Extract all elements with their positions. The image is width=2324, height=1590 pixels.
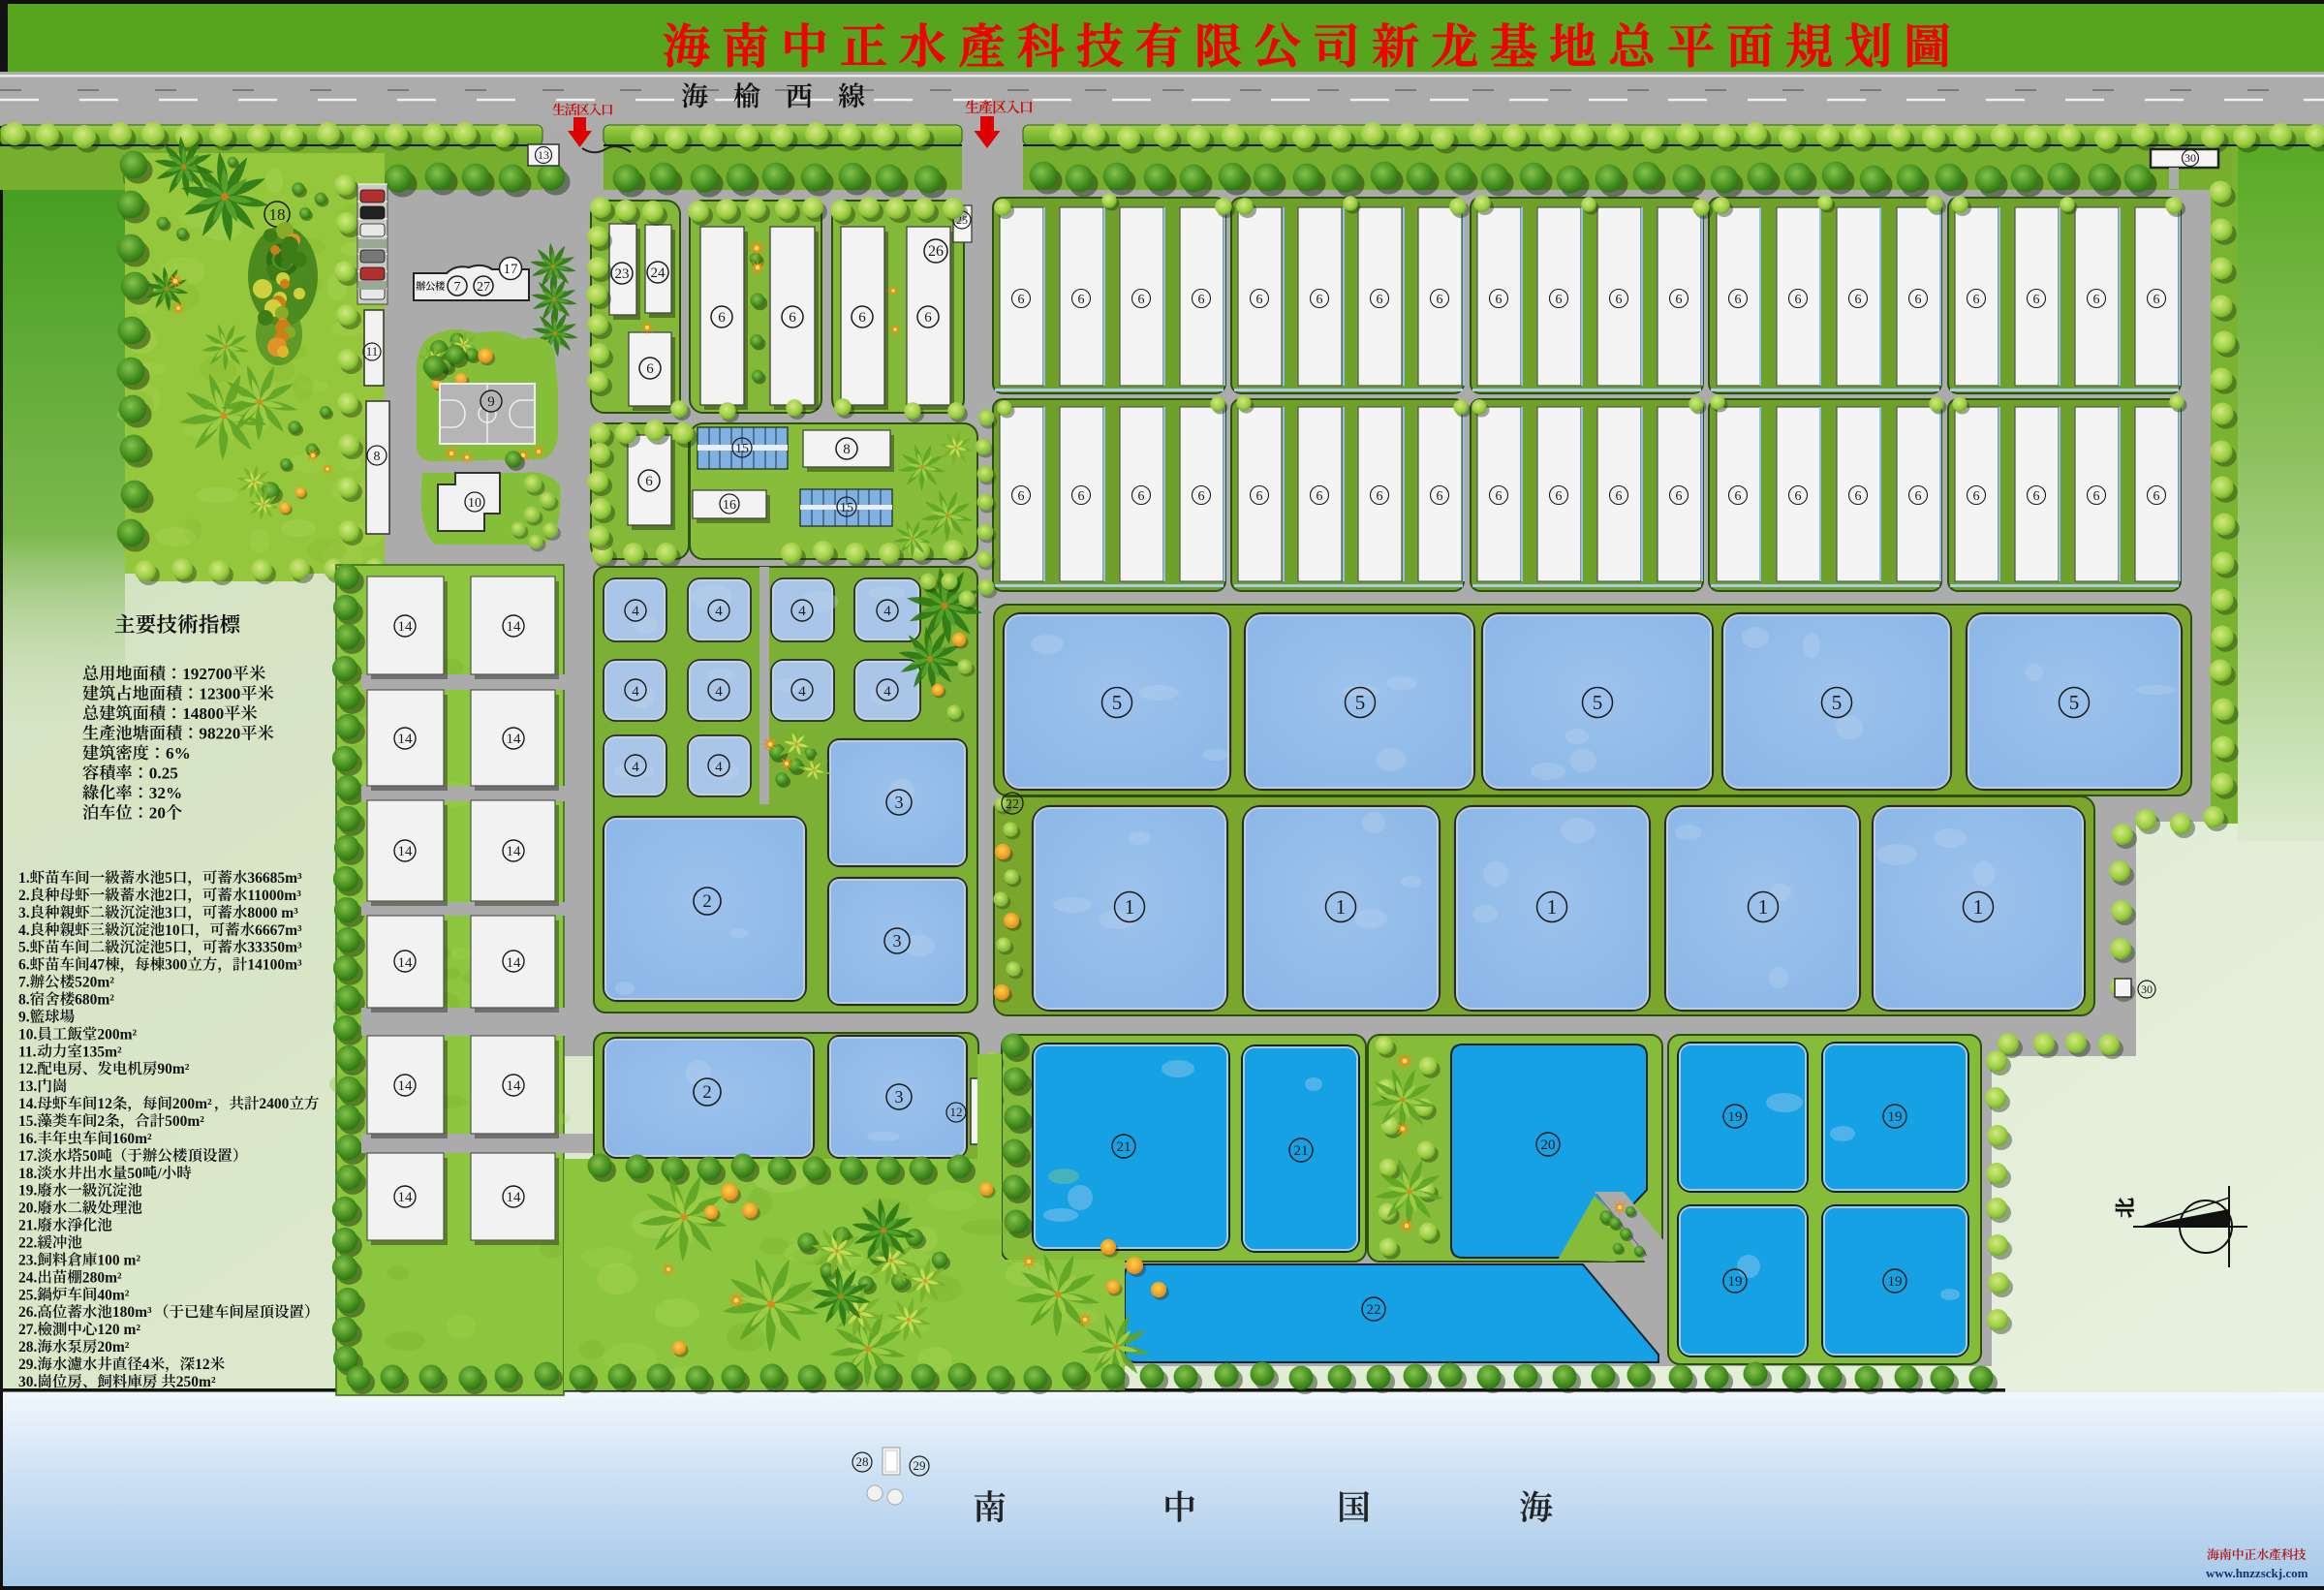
- svg-text:2400: 2400: [259, 1096, 289, 1112]
- svg-text:30: 30: [2185, 151, 2196, 165]
- svg-text:6: 6: [1018, 293, 1025, 307]
- svg-text:6: 6: [1915, 293, 1922, 307]
- svg-text:5: 5: [1593, 691, 1603, 714]
- svg-text:1: 1: [1336, 895, 1347, 919]
- svg-text:6667m³: 6667m³: [255, 922, 302, 939]
- svg-text:29: 29: [914, 1458, 926, 1473]
- svg-text:22: 22: [1006, 797, 1019, 812]
- svg-text:1.: 1.: [18, 870, 30, 887]
- svg-text:50: 50: [127, 1166, 142, 1182]
- svg-text:12300: 12300: [199, 685, 240, 703]
- svg-text:14: 14: [507, 619, 522, 635]
- svg-text:6: 6: [1377, 293, 1383, 307]
- svg-text:18: 18: [269, 205, 286, 224]
- svg-text:14800: 14800: [182, 704, 224, 723]
- svg-text:200m²: 200m²: [97, 1026, 137, 1043]
- svg-text:14: 14: [398, 732, 414, 747]
- svg-text:6: 6: [1973, 489, 1980, 504]
- svg-text:6: 6: [1377, 489, 1383, 504]
- svg-text:20: 20: [149, 804, 166, 823]
- svg-text:6: 6: [718, 310, 726, 326]
- svg-text:18.: 18.: [18, 1166, 38, 1182]
- svg-text:50: 50: [82, 1148, 98, 1165]
- svg-text:500m²: 500m²: [165, 1113, 204, 1130]
- svg-text:11.: 11.: [18, 1044, 37, 1060]
- svg-text:8.: 8.: [18, 992, 30, 1009]
- svg-text:135m²: 135m²: [82, 1044, 122, 1060]
- svg-text:40m²: 40m²: [97, 1287, 129, 1303]
- svg-text:4: 4: [883, 604, 891, 619]
- svg-text:29.: 29.: [18, 1356, 38, 1373]
- svg-text:13: 13: [538, 148, 549, 162]
- svg-text:3: 3: [895, 1087, 904, 1107]
- svg-text:15.: 15.: [18, 1113, 38, 1130]
- svg-text:180m³: 180m³: [112, 1304, 152, 1321]
- svg-text:6: 6: [1256, 293, 1263, 307]
- svg-text:14.: 14.: [18, 1096, 38, 1112]
- svg-text:2: 2: [702, 1082, 712, 1103]
- svg-text:6: 6: [1496, 489, 1503, 504]
- svg-text:19: 19: [1888, 1274, 1903, 1290]
- svg-text:10: 10: [165, 922, 180, 939]
- svg-text:6: 6: [1676, 489, 1683, 504]
- svg-text:6: 6: [1018, 489, 1025, 504]
- svg-text:14: 14: [507, 1078, 522, 1094]
- svg-text:25.: 25.: [18, 1287, 38, 1303]
- svg-text:9.: 9.: [18, 1009, 30, 1025]
- svg-text:6: 6: [1556, 293, 1563, 307]
- svg-text:36685m³: 36685m³: [247, 870, 302, 887]
- svg-text:6: 6: [2093, 293, 2100, 307]
- svg-text:26: 26: [928, 243, 944, 260]
- svg-text:4: 4: [142, 1356, 150, 1373]
- svg-text:14: 14: [507, 844, 522, 859]
- svg-text:200m²: 200m²: [172, 1096, 212, 1112]
- svg-text:23: 23: [615, 266, 630, 282]
- svg-text:14100m³: 14100m³: [247, 957, 302, 974]
- svg-text:192700: 192700: [182, 665, 232, 683]
- svg-text:6: 6: [1855, 293, 1862, 307]
- svg-text:5: 5: [1832, 691, 1843, 714]
- svg-text:6: 6: [1676, 293, 1683, 307]
- svg-text:6: 6: [1078, 293, 1085, 307]
- svg-text:3: 3: [165, 905, 172, 921]
- svg-text:6.: 6.: [18, 957, 30, 974]
- svg-text:22: 22: [1367, 1302, 1381, 1318]
- svg-text:2: 2: [702, 891, 712, 912]
- svg-text:3.: 3.: [18, 905, 30, 921]
- svg-text:4: 4: [632, 604, 639, 619]
- svg-text:4: 4: [715, 760, 723, 775]
- svg-text:26.: 26.: [18, 1304, 38, 1321]
- svg-text:6: 6: [1317, 293, 1323, 307]
- svg-text:2: 2: [165, 888, 172, 904]
- svg-text:6: 6: [1138, 293, 1145, 307]
- svg-text:250m²: 250m²: [176, 1374, 216, 1390]
- svg-text:23.: 23.: [18, 1253, 38, 1269]
- svg-text:6: 6: [924, 310, 932, 326]
- svg-text:28.: 28.: [18, 1339, 38, 1356]
- svg-text:6: 6: [1735, 489, 1742, 504]
- svg-text:6: 6: [645, 474, 653, 489]
- svg-text:6: 6: [1855, 489, 1862, 504]
- svg-text:6: 6: [1795, 293, 1802, 307]
- svg-text:1: 1: [1758, 895, 1769, 919]
- svg-text:22.: 22.: [18, 1235, 38, 1252]
- svg-text:520m²: 520m²: [75, 975, 114, 991]
- svg-text:6: 6: [646, 361, 654, 377]
- svg-text:0.25: 0.25: [149, 764, 178, 783]
- svg-text:6: 6: [1437, 293, 1443, 307]
- svg-text:16.: 16.: [18, 1131, 38, 1147]
- svg-text:6: 6: [1616, 293, 1623, 307]
- svg-text:4: 4: [798, 684, 806, 700]
- svg-text:/: /: [156, 1166, 162, 1182]
- svg-text:5.: 5.: [18, 940, 30, 956]
- svg-text:47: 47: [90, 957, 106, 974]
- svg-text:6: 6: [1496, 293, 1503, 307]
- svg-text:5: 5: [2069, 691, 2080, 714]
- svg-text:120 m²: 120 m²: [97, 1322, 140, 1338]
- svg-text:6: 6: [1973, 293, 1980, 307]
- svg-text:11: 11: [366, 344, 379, 359]
- svg-text:680m²: 680m²: [75, 992, 114, 1009]
- svg-text:280m²: 280m²: [82, 1269, 122, 1286]
- svg-text:19.: 19.: [18, 1183, 38, 1200]
- svg-text:19: 19: [1888, 1109, 1903, 1125]
- svg-text:6: 6: [1198, 489, 1205, 504]
- svg-text:17.: 17.: [18, 1148, 38, 1165]
- svg-text:1: 1: [1125, 895, 1135, 919]
- svg-text:12.: 12.: [18, 1061, 38, 1077]
- svg-text:4: 4: [632, 684, 639, 700]
- svg-text:5: 5: [1355, 691, 1366, 714]
- svg-text:12: 12: [195, 1356, 210, 1373]
- svg-text:6: 6: [1556, 489, 1563, 504]
- svg-text:6: 6: [1078, 489, 1085, 504]
- svg-text:20: 20: [1541, 1138, 1556, 1153]
- svg-text:7: 7: [454, 280, 461, 295]
- svg-text:3: 3: [895, 793, 904, 812]
- svg-text:14: 14: [507, 955, 522, 971]
- svg-text:6: 6: [858, 310, 866, 326]
- svg-text:5: 5: [1112, 691, 1123, 714]
- svg-text:6: 6: [2033, 489, 2040, 504]
- svg-text:4: 4: [632, 760, 639, 775]
- svg-text:30: 30: [2141, 982, 2153, 996]
- svg-text:17: 17: [504, 262, 519, 277]
- svg-text:98220: 98220: [199, 725, 240, 743]
- svg-text:15: 15: [735, 442, 749, 456]
- svg-text:4: 4: [883, 684, 891, 700]
- svg-text:2: 2: [97, 1113, 105, 1130]
- svg-text:6: 6: [1915, 489, 1922, 504]
- svg-text:2.: 2.: [18, 888, 30, 904]
- svg-text:14: 14: [507, 1190, 522, 1205]
- svg-text:24: 24: [651, 265, 666, 281]
- svg-text:6: 6: [2154, 293, 2160, 307]
- svg-text:4.: 4.: [18, 922, 30, 939]
- svg-text:4: 4: [715, 604, 723, 619]
- svg-text:14: 14: [398, 1078, 414, 1094]
- svg-text:7.: 7.: [18, 975, 30, 991]
- svg-text:14: 14: [398, 955, 414, 971]
- svg-text:19: 19: [1728, 1274, 1743, 1290]
- svg-text:10.: 10.: [18, 1026, 38, 1043]
- svg-text:16: 16: [723, 498, 736, 513]
- svg-text:6: 6: [1616, 489, 1623, 504]
- svg-text:6: 6: [1437, 489, 1443, 504]
- svg-text:1: 1: [1547, 895, 1558, 919]
- svg-text:27.: 27.: [18, 1322, 38, 1338]
- svg-text:30.: 30.: [18, 1374, 38, 1390]
- svg-text:1: 1: [1973, 895, 1984, 919]
- svg-text:32%: 32%: [149, 784, 182, 802]
- svg-text:24.: 24.: [18, 1269, 38, 1286]
- svg-text:8000 m³: 8000 m³: [247, 905, 298, 921]
- svg-text:28: 28: [856, 1454, 869, 1469]
- svg-text:90m²: 90m²: [157, 1061, 189, 1077]
- svg-text:8: 8: [843, 442, 851, 457]
- svg-text:300: 300: [165, 957, 188, 974]
- svg-text:4: 4: [798, 604, 806, 619]
- svg-text:6%: 6%: [166, 744, 191, 763]
- svg-text:11000m³: 11000m³: [247, 888, 301, 904]
- svg-text:www.hnzzsckj.com: www.hnzzsckj.com: [2206, 1566, 2309, 1580]
- svg-text:6: 6: [1198, 293, 1205, 307]
- svg-text:5: 5: [165, 870, 172, 887]
- svg-text:14: 14: [398, 1190, 414, 1205]
- svg-text:100 m²: 100 m²: [97, 1253, 140, 1269]
- svg-text:5: 5: [165, 940, 172, 956]
- svg-text:19: 19: [1728, 1109, 1743, 1125]
- svg-text:21: 21: [1117, 1139, 1131, 1155]
- svg-text:9: 9: [487, 394, 495, 410]
- svg-text:6: 6: [2093, 489, 2100, 504]
- svg-text:10: 10: [468, 496, 481, 511]
- svg-text:33350m³: 33350m³: [247, 940, 302, 956]
- svg-text:160m²: 160m²: [112, 1131, 152, 1147]
- svg-text:21: 21: [1294, 1143, 1309, 1159]
- svg-text:20m²: 20m²: [97, 1339, 129, 1356]
- svg-text:6: 6: [789, 310, 796, 326]
- svg-text:27: 27: [477, 280, 490, 295]
- svg-text:14: 14: [398, 619, 414, 635]
- svg-text:21.: 21.: [18, 1218, 38, 1234]
- svg-text:6: 6: [2154, 489, 2160, 504]
- svg-text:3: 3: [893, 931, 902, 951]
- svg-text:6: 6: [1317, 489, 1323, 504]
- svg-text:12: 12: [97, 1096, 112, 1112]
- svg-text:14: 14: [398, 844, 414, 859]
- svg-text:20.: 20.: [18, 1200, 38, 1217]
- svg-text:12: 12: [950, 1105, 963, 1119]
- svg-text:6: 6: [2033, 293, 2040, 307]
- svg-text:14: 14: [507, 732, 522, 747]
- svg-text:6: 6: [1256, 489, 1263, 504]
- svg-text:15: 15: [840, 501, 853, 515]
- svg-text:6: 6: [1138, 489, 1145, 504]
- svg-text:4: 4: [715, 684, 723, 700]
- svg-text:13.: 13.: [18, 1078, 38, 1095]
- svg-text:8: 8: [374, 450, 381, 464]
- svg-text:6: 6: [1795, 489, 1802, 504]
- svg-text:6: 6: [1735, 293, 1742, 307]
